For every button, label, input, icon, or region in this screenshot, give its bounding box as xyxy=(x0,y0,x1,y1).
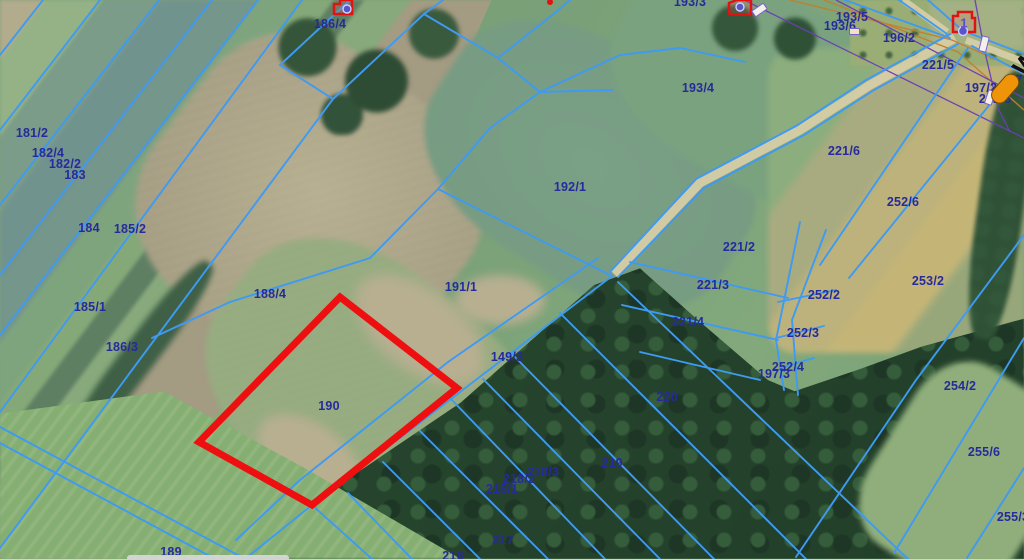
parcel-label: 181/2 xyxy=(16,126,48,140)
parcel-label: 219 xyxy=(601,456,622,470)
parcel-label: 191/1 xyxy=(445,280,477,294)
parcel-label: 218/1 xyxy=(486,482,518,496)
parcel-label: 255/6 xyxy=(968,445,1000,459)
parcel-label: 186/4 xyxy=(314,17,346,31)
parcel-label: 149/3 xyxy=(491,350,523,364)
parcel-label: 221/6 xyxy=(828,144,860,158)
parcel-label: 216 xyxy=(442,549,463,559)
parcel-label: 184 xyxy=(78,221,99,235)
parcel-label: 221/3 xyxy=(697,278,729,292)
parcel-label: 193/3 xyxy=(674,0,706,9)
parcel-label: 185/2 xyxy=(114,222,146,236)
parcel-label: 254/2 xyxy=(944,379,976,393)
parcel-label: 217 xyxy=(492,533,513,547)
parcel-label: 221/4 xyxy=(672,315,704,329)
parcel-label: 197/3 xyxy=(758,367,790,381)
parcel-label: 188/4 xyxy=(254,287,286,301)
parcel-label: 183 xyxy=(64,168,85,182)
parcel-label-layer: 181/2182/4182/2183184185/2185/1186/3186/… xyxy=(0,0,1024,559)
parcel-label: 196/2 xyxy=(883,31,915,45)
scale-bar[interactable] xyxy=(127,555,289,559)
parcel-label: 186/3 xyxy=(106,340,138,354)
parcel-label: 193/4 xyxy=(682,81,714,95)
parcel-label: 190 xyxy=(318,399,339,413)
parcel-label: 253/2 xyxy=(912,274,944,288)
parcel-label: 192/1 xyxy=(554,180,586,194)
parcel-label: 221/2 xyxy=(723,240,755,254)
parcel-label: 220 xyxy=(656,390,677,404)
parcel-label: 252/3 xyxy=(787,326,819,340)
parcel-label: 252/2 xyxy=(808,288,840,302)
utility-label-chip xyxy=(849,28,860,35)
parcel-label: 255/3 xyxy=(997,510,1024,524)
parcel-label: 252/6 xyxy=(887,195,919,209)
parcel-label: 185/1 xyxy=(74,300,106,314)
map-viewport[interactable]: 1 181/2182/4182/2183184185/2185/1186/318… xyxy=(0,0,1024,559)
parcel-label: 221/5 xyxy=(922,58,954,72)
